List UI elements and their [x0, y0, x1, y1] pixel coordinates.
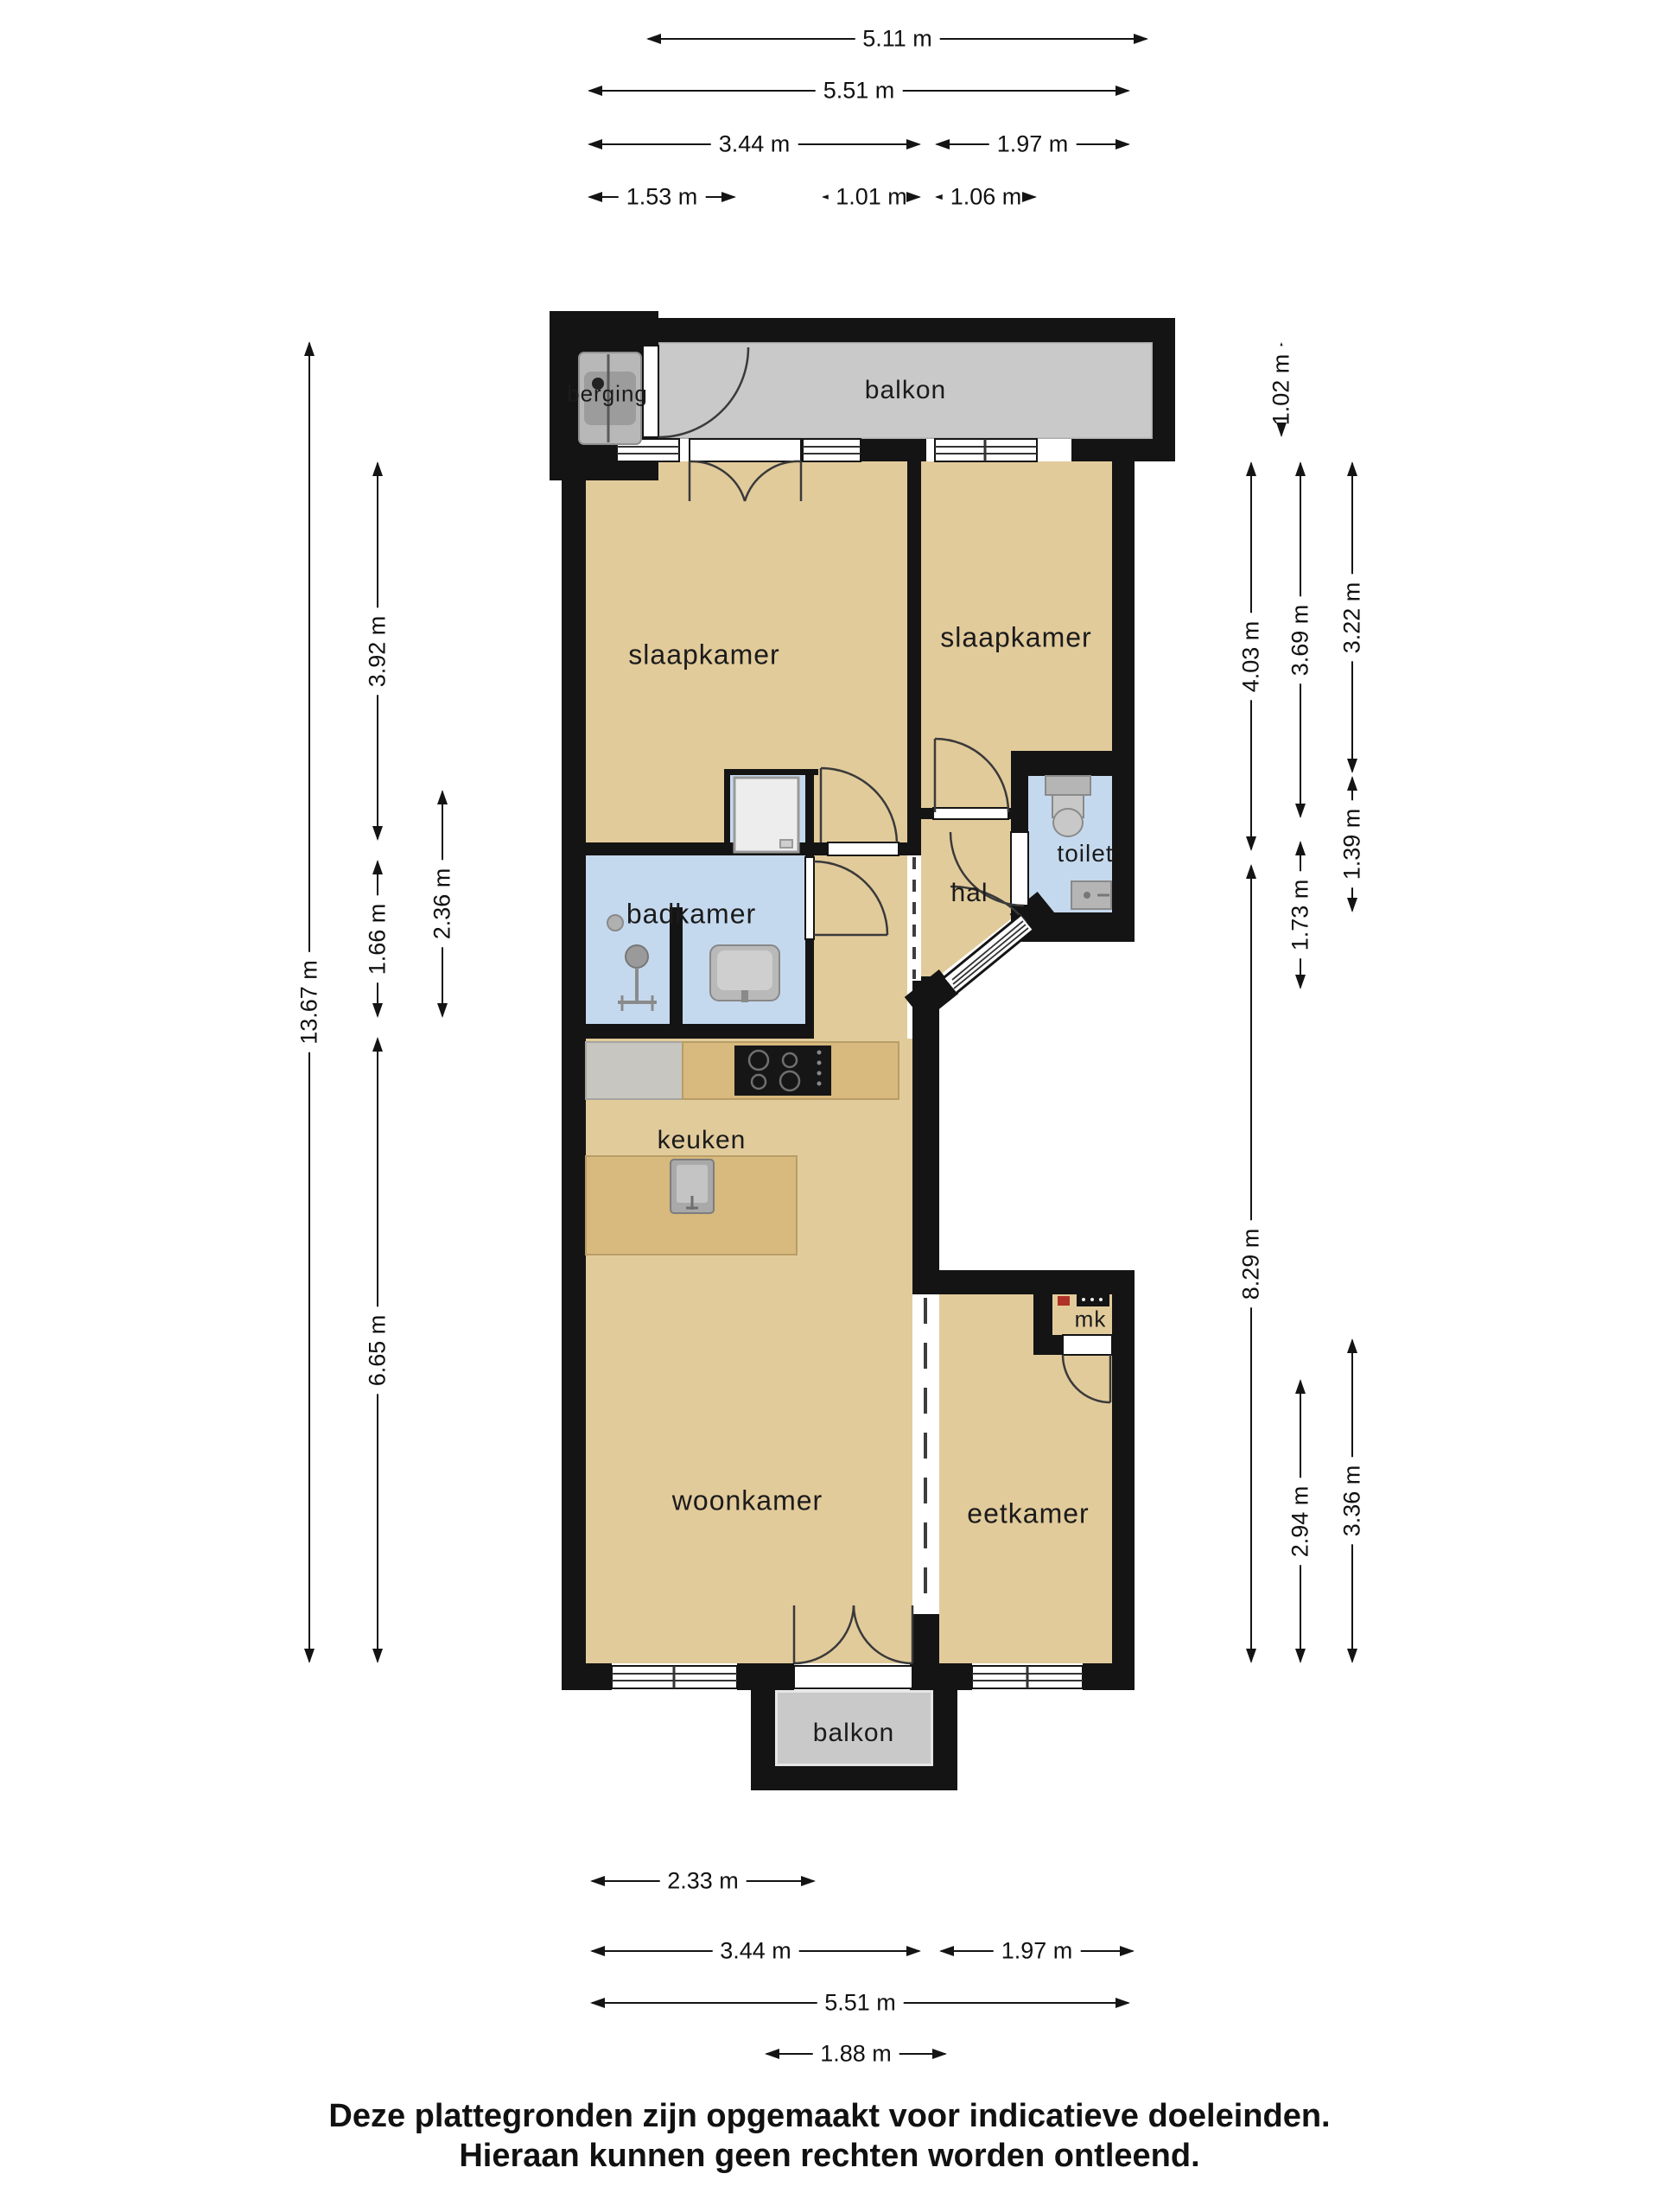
window-icon	[612, 1666, 737, 1688]
window-icon	[803, 439, 861, 461]
window-icon	[972, 1666, 1083, 1688]
dimension-right-4: 3.22 m	[1340, 461, 1364, 773]
room-label-badkamer: badkamer	[626, 899, 756, 931]
room-label-keuken: keuken	[658, 1126, 747, 1155]
bath-sink-icon	[710, 945, 779, 1002]
dimension-top-3: 3.44 m	[588, 132, 921, 156]
cooktop-icon	[734, 1046, 831, 1096]
room-label-eetkamer: eetkamer	[967, 1498, 1089, 1530]
dimension-left-5: 6.65 m	[365, 1037, 390, 1663]
room-label-woonkamer: woonkamer	[672, 1485, 823, 1517]
room-label-berging: berging	[567, 381, 648, 408]
dimension-top-5: 1.53 m	[588, 185, 736, 209]
room-label-meterkast: mk	[1075, 1306, 1107, 1333]
room-label-toilet: toilet	[1057, 840, 1113, 868]
disclaimer-line-1: Deze plattegronden zijn opgemaakt voor i…	[328, 2098, 1330, 2135]
dimension-right-8: 2.94 m	[1288, 1379, 1313, 1663]
dimension-right-9: 3.36 m	[1340, 1338, 1364, 1663]
dimension-left-3: 1.66 m	[365, 860, 390, 1018]
dimension-top-1: 5.11 m	[646, 27, 1148, 51]
dimension-top-4: 1.97 m	[935, 132, 1130, 156]
dimension-right-6: 1.73 m	[1288, 841, 1313, 989]
dimension-bottom-5: 1.88 m	[765, 2042, 947, 2066]
floorplan-page: berging balkon slaapkamer slaapkamer bad…	[0, 0, 1659, 2212]
dimension-top-7: 1.06 m	[935, 185, 1037, 209]
shower-cabin-icon	[734, 778, 798, 852]
dimension-left-1: 13.67 m	[297, 341, 321, 1663]
dimension-bottom-3: 1.97 m	[939, 1939, 1135, 1963]
toilet-sink-icon	[1071, 881, 1111, 909]
dimension-bottom-1: 2.33 m	[590, 1869, 816, 1893]
island-sink-icon	[671, 1160, 714, 1213]
window-icon	[935, 439, 1037, 461]
dimension-right-7: 8.29 m	[1239, 864, 1263, 1663]
dimension-right-3: 3.69 m	[1288, 461, 1313, 818]
room-label-hal: hal	[950, 879, 988, 908]
dimension-bottom-2: 3.44 m	[590, 1939, 921, 1963]
dimension-right-5: 1.39 m	[1340, 776, 1364, 912]
dimension-right-1: 1.02 m	[1269, 342, 1294, 437]
dimension-right-2: 4.03 m	[1239, 461, 1263, 851]
kitchen-island	[586, 1156, 797, 1255]
kitchen-counter	[586, 1042, 899, 1099]
room-label-slaapkamer-right: slaapkamer	[940, 622, 1091, 654]
dimension-bottom-4: 5.51 m	[590, 1991, 1130, 2015]
dimension-left-4: 2.36 m	[430, 790, 454, 1018]
dimension-top-2: 5.51 m	[588, 79, 1130, 103]
floor-plan-drawing	[0, 0, 1659, 2212]
disclaimer-line-2: Hieraan kunnen geen rechten worden ontle…	[459, 2138, 1199, 2175]
room-label-slaapkamer-left: slaapkamer	[628, 639, 779, 671]
dimension-left-2: 3.92 m	[365, 461, 390, 841]
room-label-balkon-top: balkon	[865, 376, 946, 405]
room-label-balkon-bottom: balkon	[813, 1719, 894, 1748]
dimension-top-6: 1.01 m	[822, 185, 921, 209]
